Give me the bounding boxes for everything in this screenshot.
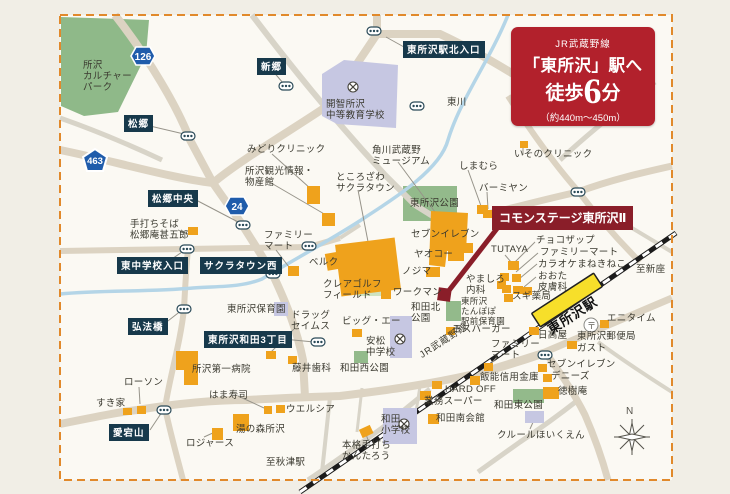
place-label: ウエルシア (286, 404, 335, 415)
park-wadakita (446, 301, 461, 321)
place-label: 東所沢公園 (410, 198, 459, 209)
place-label: カラオケまねきねこ (538, 259, 626, 270)
building-hardoff (432, 381, 442, 389)
svg-text:463: 463 (87, 156, 103, 167)
place-label: いそのクリニック (514, 149, 592, 160)
place-label: 和田東公園 (494, 400, 543, 411)
intersection-higashichugakko: 東中学校入口 (117, 257, 188, 274)
building-midori-clinic (307, 186, 320, 204)
place-label: ビッグ・エー (342, 316, 401, 327)
place-label: 藤井歯科 (292, 363, 331, 374)
building-tutaya (508, 261, 519, 270)
place-label: すき家 (96, 398, 125, 409)
place-label: 東川 (447, 97, 467, 108)
place-label: ガスト (577, 343, 606, 354)
building-gusto (567, 341, 577, 349)
banner-line-name: JR武蔵野線 (511, 36, 655, 50)
banner-minutes: 6 (584, 71, 602, 111)
school-icon (395, 334, 405, 344)
intersection-wada3chome: 東所沢和田3丁目 (204, 331, 292, 348)
post-office-mark: 〒 (585, 319, 598, 332)
building-isono-clinic (520, 141, 528, 148)
building-tokujuan (543, 387, 559, 399)
route-shield-463: 463 (81, 147, 109, 173)
place-label: 東所沢 たんぽぽ 駅前保育園 (461, 296, 505, 326)
place-label: 和田南会館 (436, 413, 485, 424)
place-label: チョコザップ (536, 235, 595, 246)
place-label: デニーズ (551, 371, 590, 382)
property-name-label: コモンステージ東所沢Ⅱ (492, 206, 633, 230)
place-label: 所沢観光情報・ 物産館 (245, 166, 314, 188)
banner-walk-time: 徒歩6分 (511, 76, 655, 109)
intersection-shingo: 新郷 (257, 58, 286, 75)
place-label: 和田西公園 (340, 363, 389, 374)
place-label: 飯能信用金庫 (480, 372, 539, 383)
place-label: やましろ 内科 (466, 274, 505, 296)
place-label: セブンイレブン (411, 229, 480, 240)
building-familymart-s (484, 363, 493, 371)
place-label: 手打ちそば 松郷庵甚五郎 (130, 219, 189, 241)
place-label: ヤオコー (414, 249, 453, 260)
place-label: セブンイレブン (547, 359, 616, 370)
place-label: 本格手打ち かんたろう (342, 440, 391, 462)
place-label: HARD OFF (445, 384, 496, 395)
place-label: 和田北 公園 (411, 302, 440, 324)
place-label: ベルク (309, 257, 338, 268)
building-seven-eleven-n (463, 243, 473, 253)
intersection-kobobashi: 弘法橋 (128, 318, 168, 335)
place-label: ファミリー マート (264, 230, 313, 252)
building-hamazushi (264, 406, 272, 414)
intersection-sakuratown-west: サクラタウン西 (200, 257, 282, 274)
building-welcia (276, 405, 285, 413)
place-label: 東所沢保育園 (227, 304, 286, 315)
place-label: おおた 皮膚科 (538, 271, 567, 293)
building-familymart-w (288, 266, 299, 276)
building-bussankan (322, 213, 335, 226)
compass-north-label: N (626, 406, 633, 417)
place-label: ロジャース (186, 438, 234, 449)
svg-text:126: 126 (135, 52, 152, 63)
place-label: みどりクリニック (247, 144, 325, 155)
place-label: 安松 中学校 (366, 336, 395, 358)
place-label: 湯の森所沢 (236, 424, 285, 435)
building-bamiyan (483, 210, 492, 218)
building-drug-seims (266, 351, 276, 359)
banner-distance: （約440m〜450m） (511, 110, 655, 124)
place-label: クルールほいくえん (497, 430, 585, 441)
place-label: はま寿司 (209, 390, 248, 401)
place-label: ノジマ (402, 266, 431, 277)
building-big-a (352, 329, 362, 337)
place-label: 徳樹庵 (558, 386, 587, 397)
building-lawson (137, 406, 146, 414)
place-label: 和田 小学校 (381, 414, 410, 436)
place-label: ファミリーマート (540, 247, 618, 258)
place-label: ドラッグ セイムス (291, 310, 330, 332)
place-label: TUTAYA (491, 244, 528, 255)
place-label: ところざわ サクラタウン (336, 172, 395, 194)
place-label: ローソン (124, 377, 163, 388)
map-screenshot: { "banner": { "line_small": "JR武蔵野線", "s… (0, 0, 730, 494)
place-label: 所沢第一病院 (192, 364, 251, 375)
place-label: クレアゴルフ フィールド (323, 279, 382, 301)
intersection-atagoyama: 愛宕山 (109, 424, 149, 441)
building-seven-eleven-s (538, 364, 547, 372)
building-workman (381, 289, 391, 299)
place-label: バーミヤン (479, 183, 528, 194)
intersection-station-north: 東所沢駅北入口 (403, 41, 485, 58)
svg-text:24: 24 (231, 202, 243, 213)
place-label: エニタイム (607, 313, 656, 324)
intersection-matsugo: 松郷 (124, 115, 153, 132)
building-crule-hoikuen (525, 411, 544, 423)
place-label: 所沢 カルチャー パーク (83, 60, 132, 94)
place-label: 東所沢郵便局 (577, 331, 636, 342)
route-shield-126: 126 (128, 45, 158, 67)
place-label: 開智所沢 中等教育学校 (326, 99, 385, 121)
place-label: 角川武蔵野 ミュージアム (372, 145, 430, 167)
route-shield-24: 24 (222, 195, 252, 217)
intersection-matsugo-chuo: 松郷中央 (148, 190, 198, 207)
place-label: ワークマン (393, 287, 442, 298)
place-label: ファミリー マート (491, 339, 540, 361)
walk-time-banner: JR武蔵野線 「東所沢」駅へ 徒歩6分 （約440m〜450m） (511, 27, 655, 126)
place-label: モスバーガー (452, 324, 511, 335)
rail-direction-akitsu: 至秋津駅 (266, 457, 305, 468)
building-soba (188, 227, 198, 235)
rail-direction-niiza: 至新座 (636, 264, 665, 275)
place-label: しまむら (459, 161, 498, 172)
school-icon (348, 82, 358, 92)
place-label: 業務スーパー (424, 396, 483, 407)
